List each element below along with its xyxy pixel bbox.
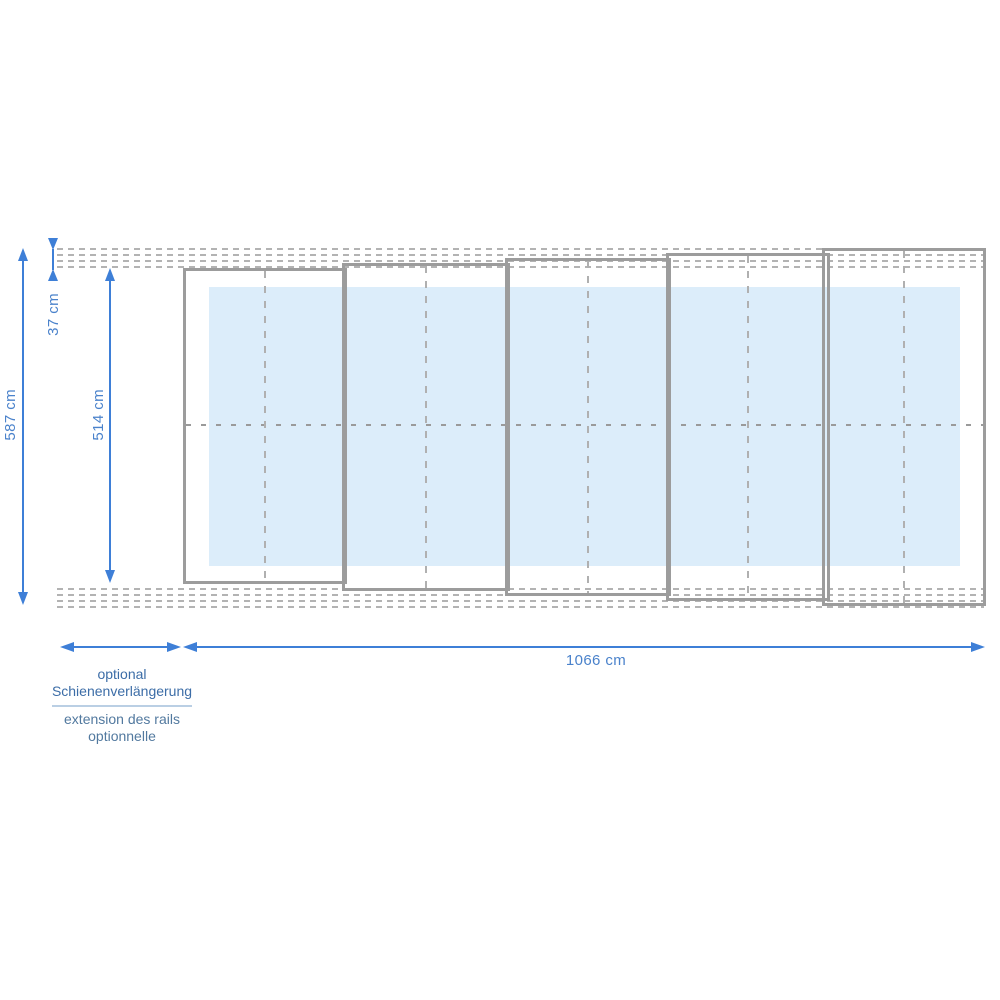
inner-height-dimension-label: 514 cm [90, 389, 107, 441]
segment-centerline [587, 261, 589, 593]
dimension-line [22, 252, 24, 601]
dimension-line [52, 249, 54, 270]
arrow-down-icon [105, 570, 115, 583]
total-length-dimension-label: 1066 cm [540, 652, 652, 669]
pool-enclosure-diagram: 587 cm 514 cm 37 cm 1066 cm optional Sch… [0, 0, 1000, 1000]
rail-extension-note-de-line2: Schienenverlängerung [30, 683, 214, 700]
arrow-right-icon [167, 642, 181, 652]
rail-band-dimension-label: 37 cm [45, 293, 62, 336]
rail-extension-note-fr-line1: extension des rails [30, 711, 214, 728]
arrow-right-icon [971, 642, 985, 652]
rail-band-dimension-arrow [47, 238, 59, 281]
dimension-line [109, 272, 111, 579]
rail-extension-note-fr-line2: optionnelle [30, 728, 214, 745]
dimension-line [64, 646, 177, 648]
outer-height-dimension-label: 587 cm [2, 389, 19, 441]
enclosure-segment-2 [342, 263, 510, 591]
enclosure-segment-1 [183, 268, 347, 584]
segment-centerline [425, 266, 427, 588]
rail-extension-note-de-line1: optional [30, 666, 214, 683]
rail-extension-dimension-arrow [60, 641, 181, 653]
arrow-down-icon [18, 592, 28, 605]
dimension-line [187, 646, 981, 648]
bottom-rail-dash-line [57, 606, 984, 608]
segment-centerline [903, 251, 905, 603]
enclosure-segment-4 [666, 253, 830, 601]
enclosure-segment-3 [505, 258, 671, 596]
arrow-up-icon [48, 269, 58, 281]
note-divider-line [52, 705, 192, 707]
rail-extension-note: optional Schienenverlängerung extension … [30, 666, 214, 745]
segment-centerline [747, 256, 749, 598]
segment-centerline [264, 271, 266, 581]
enclosure-segment-5 [822, 248, 986, 606]
